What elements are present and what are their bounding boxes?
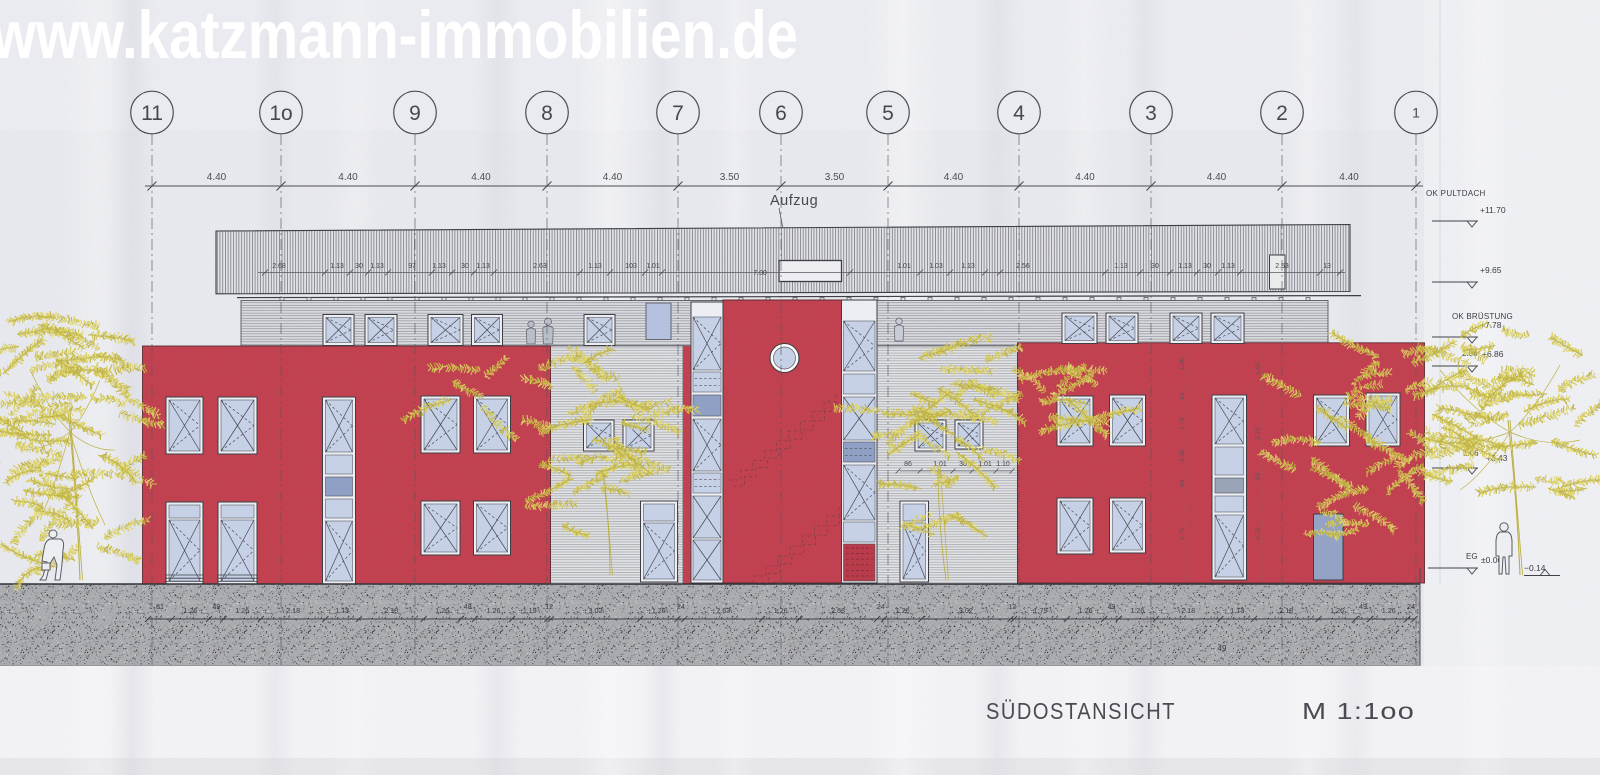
svg-text:www.katzmann-immobilien.de: www.katzmann-immobilien.de bbox=[0, 0, 798, 73]
